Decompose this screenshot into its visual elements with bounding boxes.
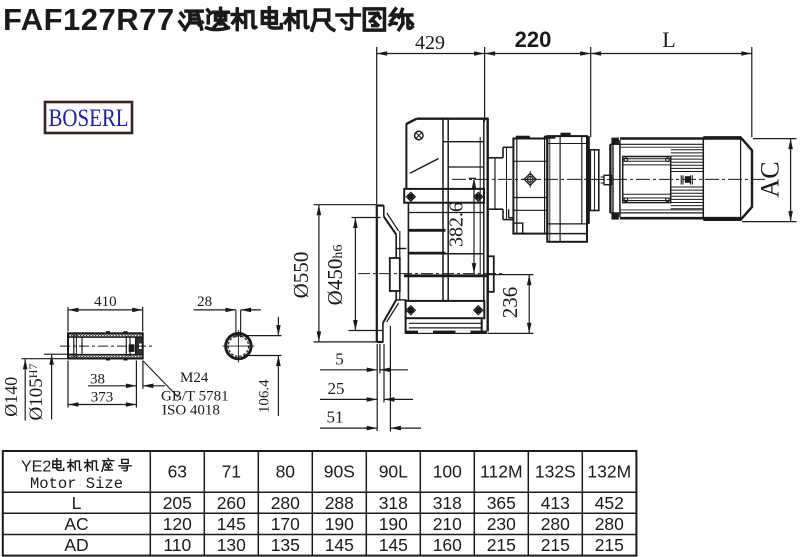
svg-text:373: 373 bbox=[91, 390, 114, 406]
svg-text:280: 280 bbox=[541, 514, 570, 534]
svg-text:63: 63 bbox=[168, 462, 187, 482]
svg-text:145: 145 bbox=[217, 514, 246, 534]
svg-text:190: 190 bbox=[379, 514, 408, 534]
svg-text:145: 145 bbox=[325, 535, 354, 555]
svg-text:429: 429 bbox=[415, 32, 445, 54]
svg-text:413: 413 bbox=[541, 493, 570, 513]
svg-text:260: 260 bbox=[217, 493, 246, 513]
svg-text:280: 280 bbox=[271, 493, 300, 513]
svg-text:AC: AC bbox=[64, 514, 88, 534]
svg-text:90L: 90L bbox=[379, 462, 408, 482]
svg-text:215: 215 bbox=[595, 535, 624, 555]
svg-text:132M: 132M bbox=[587, 462, 631, 482]
svg-text:215: 215 bbox=[487, 535, 516, 555]
svg-text:YE2: YE2 bbox=[21, 459, 51, 476]
svg-text:100: 100 bbox=[433, 462, 462, 482]
svg-text:236: 236 bbox=[498, 287, 522, 319]
svg-text:BOSERL: BOSERL bbox=[49, 105, 129, 132]
svg-text:51: 51 bbox=[327, 408, 344, 427]
svg-text:38: 38 bbox=[90, 371, 105, 387]
svg-text:112M: 112M bbox=[480, 462, 522, 482]
svg-text:L: L bbox=[662, 27, 675, 52]
svg-text:Ø140: Ø140 bbox=[1, 377, 21, 417]
svg-text:170: 170 bbox=[271, 514, 300, 534]
svg-text:L: L bbox=[72, 493, 82, 513]
svg-text:ISO 4018: ISO 4018 bbox=[162, 403, 220, 419]
svg-text:5: 5 bbox=[335, 350, 344, 369]
svg-text:25: 25 bbox=[328, 379, 345, 398]
svg-text:205: 205 bbox=[163, 493, 192, 513]
svg-text:28: 28 bbox=[197, 294, 212, 310]
svg-text:110: 110 bbox=[163, 535, 191, 555]
svg-text:135: 135 bbox=[271, 535, 300, 555]
svg-text:130: 130 bbox=[217, 535, 246, 555]
svg-text:190: 190 bbox=[325, 514, 354, 534]
svg-text:120: 120 bbox=[163, 514, 192, 534]
svg-text:160: 160 bbox=[433, 535, 462, 555]
svg-text:Motor Size: Motor Size bbox=[30, 475, 123, 493]
svg-text:Ø550: Ø550 bbox=[289, 252, 313, 299]
svg-text:288: 288 bbox=[325, 493, 354, 513]
svg-text:FAF127R77: FAF127R77 bbox=[3, 2, 175, 37]
svg-text:280: 280 bbox=[595, 514, 624, 534]
svg-text:230: 230 bbox=[487, 514, 516, 534]
svg-text:215: 215 bbox=[541, 535, 570, 555]
svg-text:210: 210 bbox=[433, 514, 462, 534]
svg-text:410: 410 bbox=[94, 294, 117, 310]
svg-text:71: 71 bbox=[222, 462, 241, 482]
svg-text:M24: M24 bbox=[180, 370, 209, 386]
svg-text:452: 452 bbox=[595, 493, 624, 513]
svg-text:318: 318 bbox=[379, 493, 408, 513]
svg-text:106.4: 106.4 bbox=[257, 379, 273, 413]
svg-text:AD: AD bbox=[64, 535, 88, 555]
svg-text:132S: 132S bbox=[535, 462, 576, 482]
svg-text:90S: 90S bbox=[324, 462, 355, 482]
svg-text:365: 365 bbox=[487, 493, 516, 513]
svg-text:318: 318 bbox=[433, 493, 462, 513]
svg-text:220: 220 bbox=[515, 27, 552, 52]
svg-text:145: 145 bbox=[379, 535, 408, 555]
svg-text:382.6: 382.6 bbox=[446, 202, 468, 247]
svg-text:80: 80 bbox=[276, 462, 296, 482]
